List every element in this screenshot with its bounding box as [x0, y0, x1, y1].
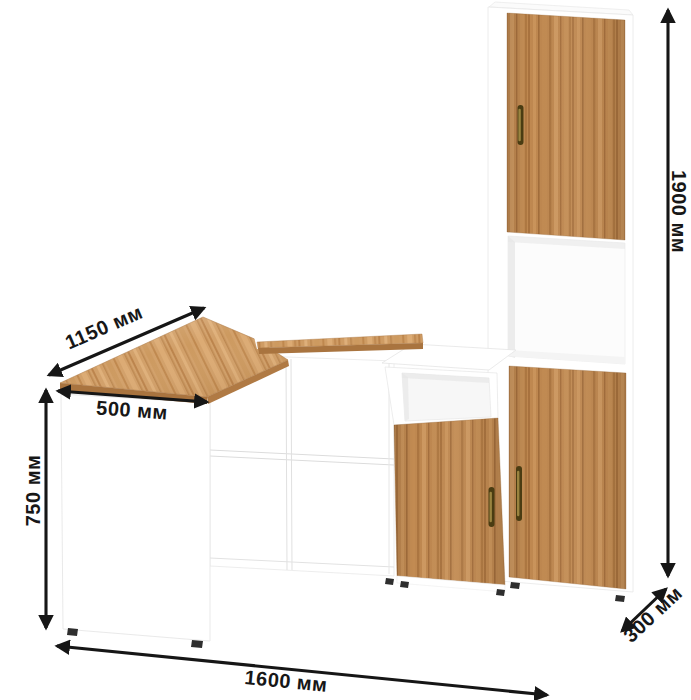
cabinet-foot [510, 582, 520, 589]
desk-side-panel [61, 394, 210, 641]
desk-foot [67, 628, 78, 636]
tall-cabinet-lower-door-shading [509, 366, 626, 589]
upper-door-handle-icon [520, 108, 521, 142]
cabinet-foot [615, 595, 625, 602]
desk-foot [191, 640, 203, 648]
product-dimension-image: 1150 мм 500 мм 750 мм 1600 мм 300 мм 190… [0, 0, 691, 700]
tall-cabinet-open-niche [508, 236, 625, 364]
dimension-label-total-height: 1900 мм [667, 137, 690, 287]
tall-cabinet [488, 2, 633, 602]
cabinet-foot [496, 589, 505, 596]
tall-cabinet-upper-door-shading [507, 13, 625, 240]
middle-cabinet-door-shading [394, 418, 505, 585]
dimension-label-desk-height: 750 мм [22, 416, 45, 566]
middle-door-handle-icon [491, 490, 492, 524]
lower-door-handle-icon [518, 469, 519, 518]
cabinet-foot [385, 578, 394, 585]
middle-cabinet [382, 344, 516, 596]
cabinet-foot [400, 581, 409, 588]
furniture-render [0, 0, 691, 700]
middle-cabinet-open-niche [402, 373, 491, 421]
